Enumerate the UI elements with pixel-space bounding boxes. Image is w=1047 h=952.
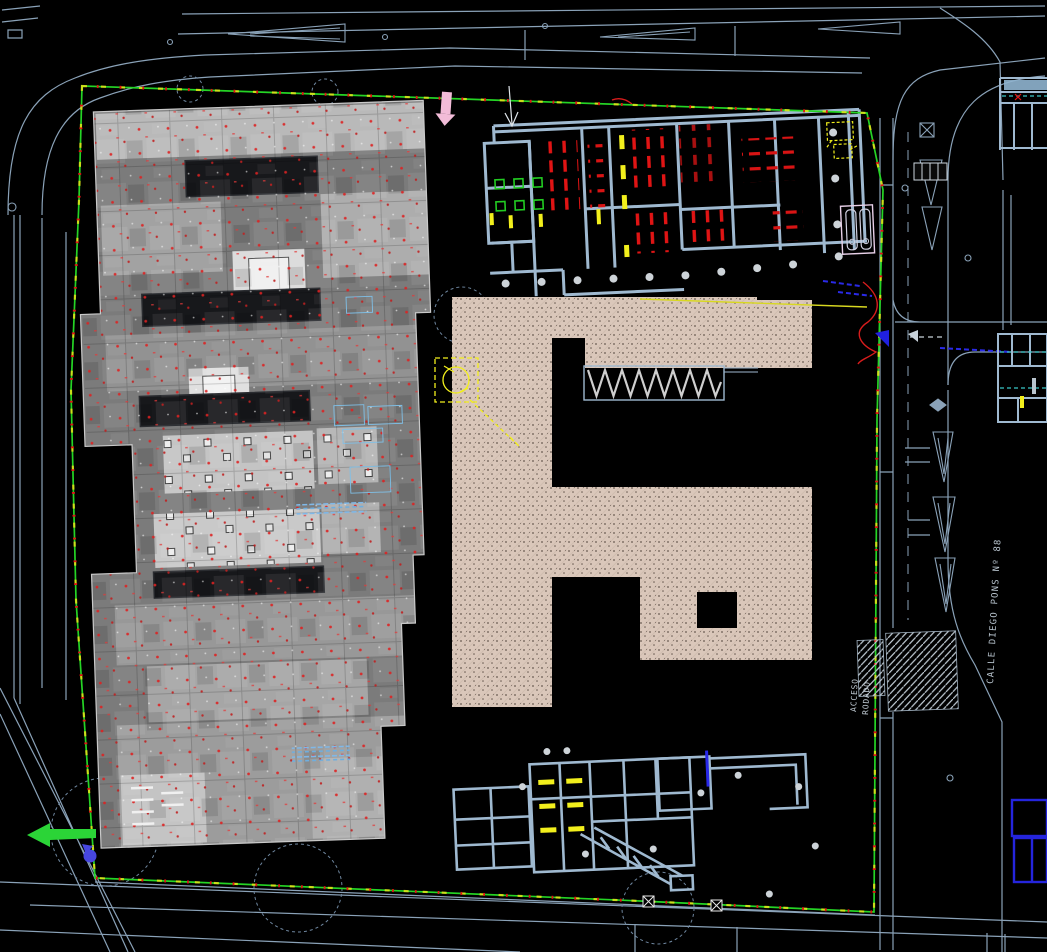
southeast-blue-fragment	[1012, 800, 1047, 882]
south-building-plan	[452, 736, 821, 911]
green-fixture-grid	[495, 178, 543, 211]
sanitary-detail	[840, 205, 874, 254]
small-blue-text-block	[292, 745, 351, 763]
central-courtyard-hatch	[435, 297, 812, 707]
pink-down-arrow	[435, 91, 457, 126]
green-exit-arrow	[27, 823, 96, 847]
east-plan-fragment-top	[1000, 78, 1047, 150]
blue-location-marker	[82, 844, 97, 863]
red-tree-line	[858, 282, 877, 364]
courtyard-black-notch	[697, 592, 737, 628]
small-blue-text-block	[296, 502, 366, 516]
access-crosswalk-hatch	[857, 631, 958, 711]
blue-flow-marker	[875, 330, 889, 347]
small-road-arrow	[908, 330, 918, 342]
cad-canvas: CALLE DIEGO PONS Nº 88 ACCESO RODADO	[0, 0, 1047, 952]
street-label: CALLE DIEGO PONS Nº 88	[986, 538, 1004, 684]
access-label-line1: ACCESO	[849, 678, 860, 712]
south-building-walls	[453, 752, 811, 899]
sawtooth-canopy	[584, 366, 758, 400]
access-label-line2: RODADO	[861, 681, 872, 715]
culvert-symbol	[914, 163, 947, 180]
white-down-arrow	[505, 86, 518, 126]
yellow-stair-detail	[825, 121, 859, 158]
east-plan-fragment-mid	[998, 334, 1047, 422]
site-plan-svg: CALLE DIEGO PONS Nº 88 ACCESO RODADO	[0, 0, 1047, 952]
red-fixture-grids	[541, 120, 804, 258]
north-building-walls	[483, 109, 868, 298]
north-building-plan	[483, 109, 875, 298]
left-building-raster	[67, 94, 455, 854]
